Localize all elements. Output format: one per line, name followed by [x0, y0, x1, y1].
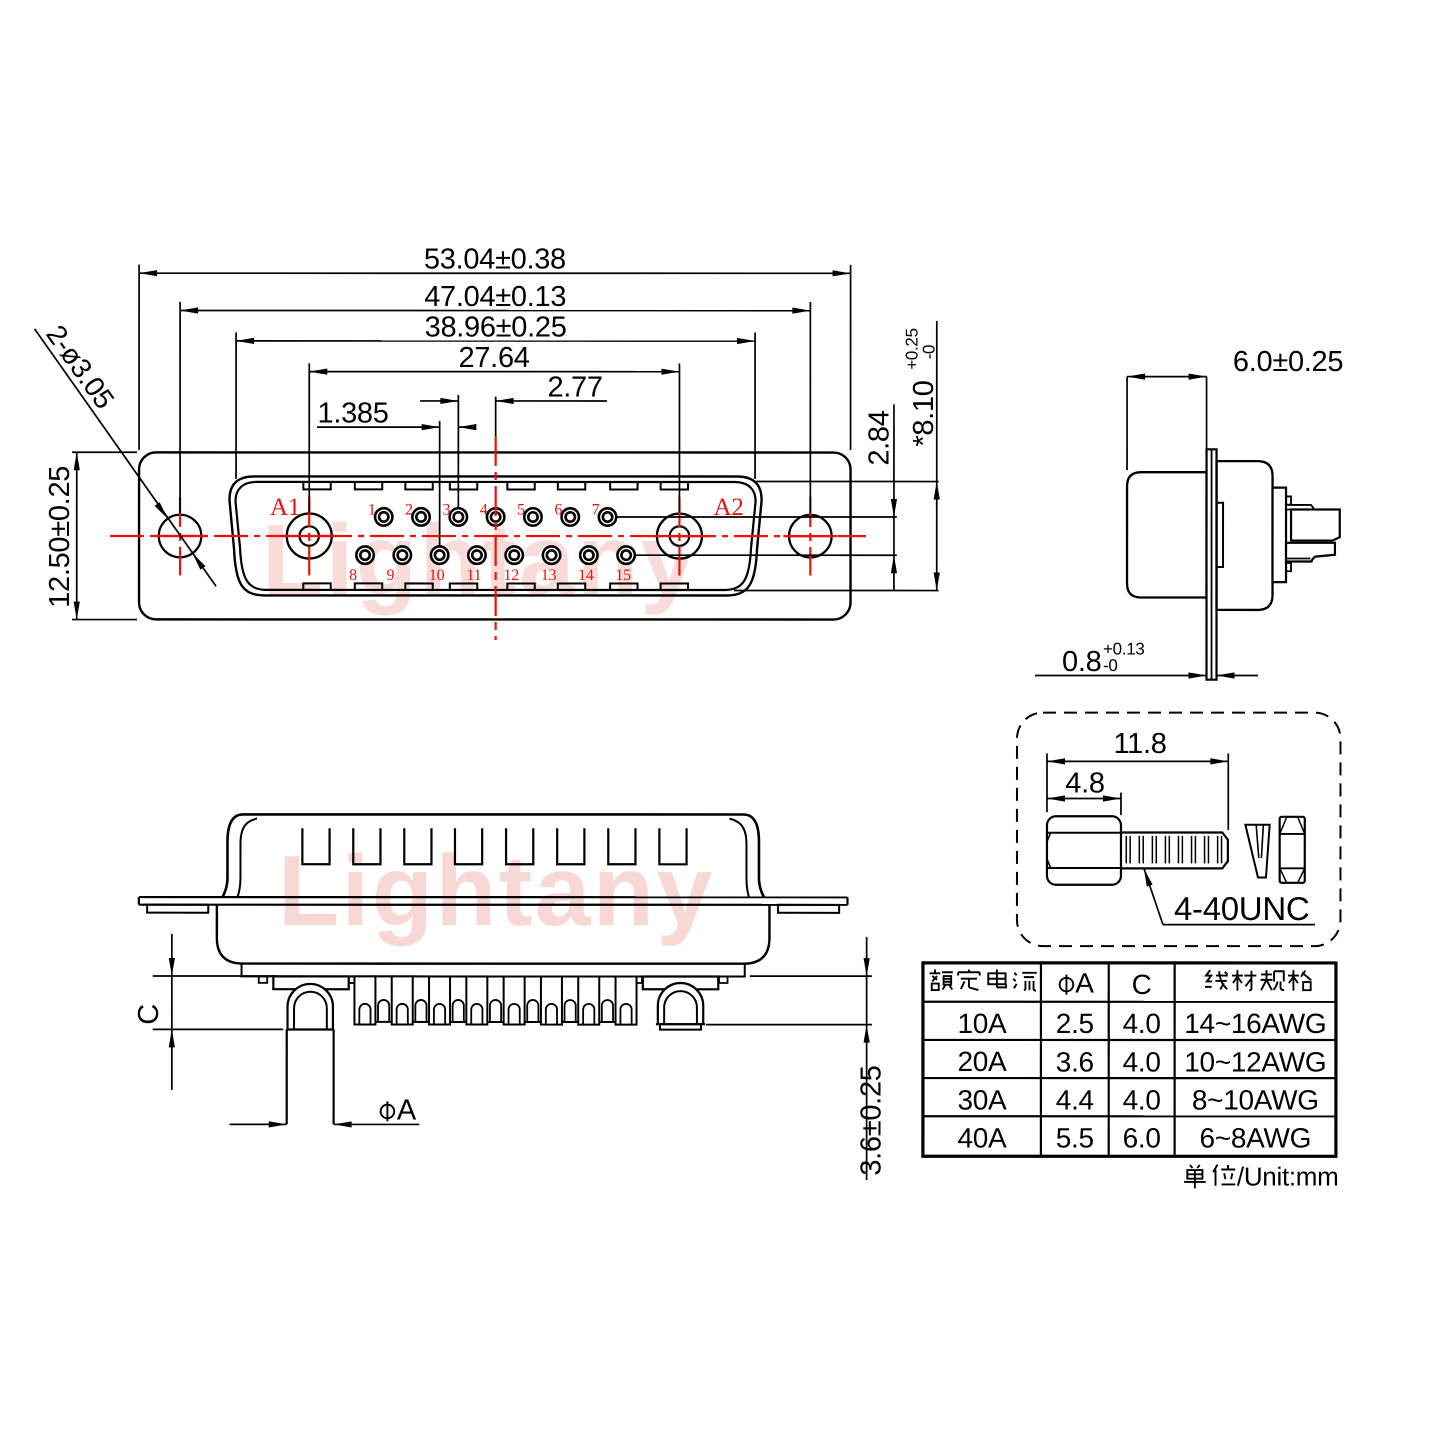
svg-text:/Unit:mm: /Unit:mm — [1237, 1162, 1339, 1192]
svg-text:15: 15 — [615, 567, 631, 584]
svg-text:14: 14 — [578, 567, 594, 584]
svg-text:10A: 10A — [957, 1008, 1007, 1039]
svg-text:2.84: 2.84 — [864, 410, 896, 465]
svg-text:40A: 40A — [957, 1123, 1007, 1154]
svg-text:7: 7 — [592, 501, 600, 518]
svg-text:*8.10: *8.10 — [908, 380, 940, 446]
svg-text:-0: -0 — [920, 345, 939, 360]
svg-text:10: 10 — [429, 567, 445, 584]
svg-text:11.8: 11.8 — [1113, 728, 1166, 760]
svg-text:A1: A1 — [270, 494, 300, 521]
svg-text:-0: -0 — [1103, 656, 1118, 675]
svg-text:3: 3 — [442, 501, 450, 518]
svg-text:27.64: 27.64 — [459, 342, 530, 374]
svg-text:1.385: 1.385 — [318, 397, 389, 429]
svg-text:6.0: 6.0 — [1123, 1123, 1161, 1154]
svg-text:4-40UNC: 4-40UNC — [1174, 890, 1309, 927]
svg-text:3.6±0.25: 3.6±0.25 — [855, 1065, 887, 1175]
svg-text:C: C — [1132, 969, 1152, 1000]
svg-text:12.50±0.25: 12.50±0.25 — [44, 466, 76, 608]
svg-text:A: A — [397, 1094, 417, 1126]
svg-text:2: 2 — [405, 501, 413, 518]
svg-text:2.77: 2.77 — [547, 371, 602, 403]
svg-text:11: 11 — [467, 567, 482, 584]
svg-text:Lightany: Lightany — [278, 835, 715, 947]
svg-text:3.6: 3.6 — [1056, 1046, 1094, 1077]
svg-text:0.8: 0.8 — [1062, 646, 1101, 678]
svg-text:4.0: 4.0 — [1123, 1008, 1161, 1039]
svg-text:8: 8 — [349, 567, 357, 584]
svg-text:A: A — [1075, 968, 1094, 999]
svg-text:5: 5 — [517, 501, 525, 518]
svg-text:4: 4 — [480, 501, 488, 518]
svg-text:4.0: 4.0 — [1123, 1084, 1161, 1115]
svg-text:20A: 20A — [957, 1046, 1007, 1077]
svg-text:6: 6 — [554, 501, 562, 518]
svg-text:53.04±0.38: 53.04±0.38 — [424, 243, 566, 275]
svg-text:13: 13 — [541, 567, 557, 584]
svg-text:47.04±0.13: 47.04±0.13 — [424, 281, 566, 313]
svg-text:4.4: 4.4 — [1056, 1084, 1094, 1115]
svg-text:38.96±0.25: 38.96±0.25 — [425, 311, 567, 343]
svg-text:14~16AWG: 14~16AWG — [1184, 1008, 1326, 1039]
svg-text:C: C — [133, 1004, 165, 1025]
svg-text:4.0: 4.0 — [1123, 1046, 1161, 1077]
svg-text:8~10AWG: 8~10AWG — [1192, 1084, 1319, 1115]
svg-text:6.0±0.25: 6.0±0.25 — [1233, 346, 1343, 378]
svg-text:5.5: 5.5 — [1056, 1123, 1094, 1154]
svg-text:9: 9 — [386, 567, 394, 584]
svg-text:4.8: 4.8 — [1065, 768, 1104, 800]
svg-text:2.5: 2.5 — [1056, 1008, 1094, 1039]
svg-text:6~8AWG: 6~8AWG — [1200, 1123, 1312, 1154]
svg-text:12: 12 — [504, 567, 520, 584]
svg-text:10~12AWG: 10~12AWG — [1184, 1046, 1326, 1077]
svg-text:30A: 30A — [957, 1084, 1007, 1115]
svg-text:1: 1 — [368, 501, 376, 518]
